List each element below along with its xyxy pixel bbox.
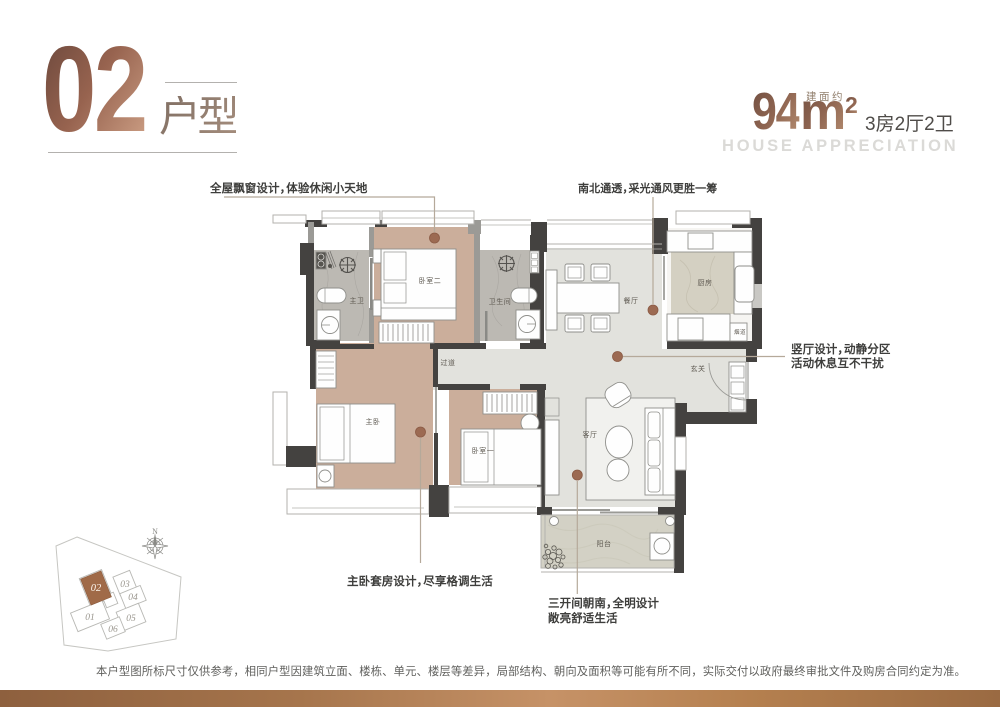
svg-text:烟道: 烟道 bbox=[734, 328, 746, 336]
svg-text:玄关: 玄关 bbox=[691, 364, 706, 373]
svg-text:03: 03 bbox=[120, 580, 130, 590]
svg-text:卫生间: 卫生间 bbox=[489, 297, 512, 306]
svg-text:02: 02 bbox=[91, 583, 102, 594]
svg-text:客厅: 客厅 bbox=[583, 430, 598, 439]
svg-text:卧室一: 卧室一 bbox=[472, 446, 495, 455]
svg-text:01: 01 bbox=[85, 613, 95, 623]
svg-text:卧室二: 卧室二 bbox=[419, 276, 442, 285]
svg-text:主卫: 主卫 bbox=[350, 296, 365, 305]
svg-text:N: N bbox=[152, 527, 158, 536]
svg-text:05: 05 bbox=[126, 614, 136, 624]
svg-text:阳台: 阳台 bbox=[597, 539, 612, 548]
svg-text:主卧: 主卧 bbox=[366, 417, 381, 426]
svg-text:06: 06 bbox=[108, 625, 118, 635]
svg-text:04: 04 bbox=[128, 593, 138, 603]
svg-text:过道: 过道 bbox=[441, 358, 456, 367]
svg-text:餐厅: 餐厅 bbox=[624, 296, 639, 305]
svg-text:厨房: 厨房 bbox=[698, 278, 713, 287]
